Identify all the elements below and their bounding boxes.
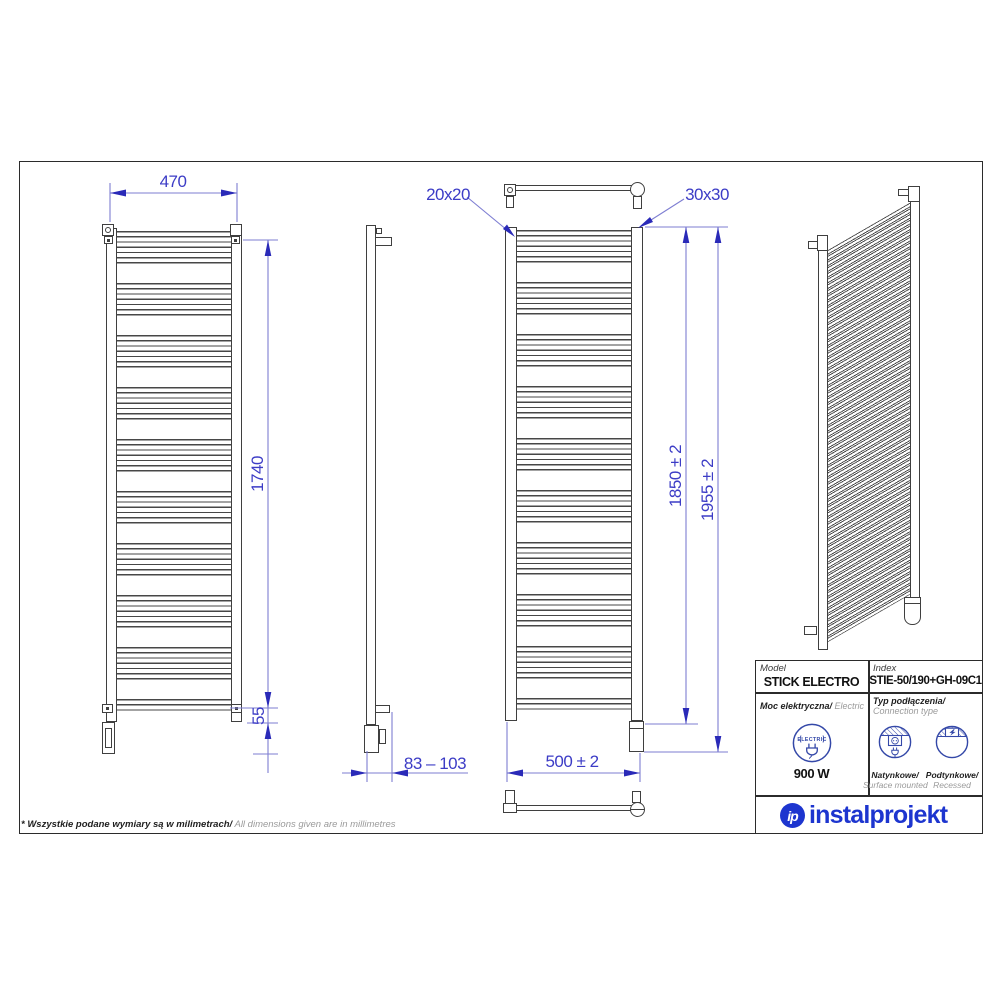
mounting-hole-icon <box>507 187 513 193</box>
plan-bottom-heater-line <box>631 809 644 810</box>
front-right-collector <box>231 228 242 722</box>
footnote-pl: * Wszystkie podane wymiary są w milimetr… <box>21 819 232 830</box>
dim-tube-profile: 20x20 <box>398 185 498 205</box>
surface-label-en: Surface mounted <box>863 780 927 790</box>
surface-label-pl: Natynkowe/ <box>863 770 927 780</box>
plan-bottom-left-bracket <box>503 803 517 813</box>
front-bracket-top-right-foot <box>231 236 240 244</box>
screw-icon <box>234 239 237 242</box>
side-heating-element-knob <box>379 729 386 744</box>
front-left-collector <box>106 228 117 722</box>
connection-label-en: Connection type <box>873 706 945 716</box>
mounting-hole-icon <box>105 227 111 233</box>
dim-front-height: 1740 <box>248 414 268 534</box>
plan-bottom-left-foot <box>505 790 515 804</box>
side-body <box>366 225 376 725</box>
front-bracket-top-left <box>102 224 114 236</box>
power-label-en: Electric power <box>832 701 866 711</box>
index-value: STIE-50/190+GH-09C1 <box>869 675 982 687</box>
connection-left-collector <box>505 227 517 721</box>
perspective-right-collector <box>910 190 920 598</box>
front-bracket-bottom-left <box>102 704 113 713</box>
power-value: 900 W <box>755 766 868 781</box>
power-label: Moc elektryczna/ Electric power <box>760 696 866 714</box>
screw-icon <box>235 707 238 710</box>
front-bracket-top-right <box>230 224 242 236</box>
table-divider <box>755 795 983 797</box>
perspective-left-collector <box>818 242 828 650</box>
perspective-heater-cap-line <box>905 603 920 604</box>
footnote-en: All dimensions given are in millimetres <box>232 819 395 830</box>
dimensions-footnote: * Wszystkie podane wymiary są w milimetr… <box>21 819 396 830</box>
front-bracket-bottom-right <box>231 704 242 713</box>
plan-top-left-bracket <box>504 184 516 196</box>
model-value: STICK ELECTRO <box>756 675 867 689</box>
plan-bottom-bar <box>516 805 633 811</box>
side-top-bracket <box>375 237 392 246</box>
screw-icon <box>107 239 110 242</box>
perspective-bracket-top-left <box>817 235 828 251</box>
svg-text:ELECTRIC: ELECTRIC <box>797 737 826 743</box>
recessed-label-pl: Podtynkowe/ <box>920 770 984 780</box>
perspective-bracket-bottom-left <box>804 626 817 635</box>
dim-connection-width: 500 ± 2 <box>522 752 622 772</box>
logo-mark-icon: ip <box>780 803 805 828</box>
dim-side-depth: 83 – 103 <box>385 754 485 774</box>
table-divider <box>755 692 983 694</box>
surface-mounted-icon <box>878 725 912 759</box>
dim-front-bottom-offset: 55 <box>249 656 269 776</box>
front-bracket-top-left-foot <box>104 236 113 244</box>
dim-mount-height: 1850 ± 2 <box>666 416 686 536</box>
connection-right-collector <box>631 227 643 721</box>
connection-label: Typ podłączenia/ Connection type <box>873 696 945 716</box>
dim-collector-profile: 30x30 <box>657 185 757 205</box>
connection-label-pl: Typ podłączenia/ <box>873 696 945 706</box>
plan-top-right-collector <box>630 182 645 197</box>
perspective-tubes <box>828 203 910 642</box>
side-heating-element <box>364 725 379 753</box>
power-label-pl: Moc elektryczna/ <box>760 701 832 711</box>
recessed-icon <box>935 725 969 759</box>
side-bottom-bracket <box>375 705 390 713</box>
recessed-caption: Podtynkowe/ Recessed <box>920 770 984 790</box>
electric-icon: ELECTRIC <box>792 723 832 763</box>
surface-mounted-caption: Natynkowe/ Surface mounted <box>863 770 927 790</box>
plan-top-right-foot <box>633 196 642 209</box>
plan-top-bar <box>513 185 633 191</box>
screw-icon <box>106 707 109 710</box>
front-heating-element-detail <box>105 728 112 748</box>
model-label: Model <box>760 663 786 674</box>
datasheet-page: 470 1740 55 83 – 103 20x20 30x30 1850 ± … <box>0 0 1000 1000</box>
recessed-label-en: Recessed <box>920 780 984 790</box>
brand-wordmark: instalprojekt <box>809 801 947 830</box>
side-top-lug <box>376 228 382 234</box>
connection-heating-element-cap <box>629 721 644 729</box>
plan-top-left-foot <box>506 196 514 208</box>
connection-tubes <box>517 230 631 711</box>
dim-front-width: 470 <box>123 172 223 192</box>
perspective-bracket-top-right <box>908 186 920 202</box>
perspective-heating-element <box>904 597 921 625</box>
dim-total-height: 1955 ± 2 <box>698 430 718 550</box>
logo-monogram: ip <box>787 808 797 824</box>
index-label: Index <box>873 663 896 674</box>
front-tubes <box>117 231 231 711</box>
